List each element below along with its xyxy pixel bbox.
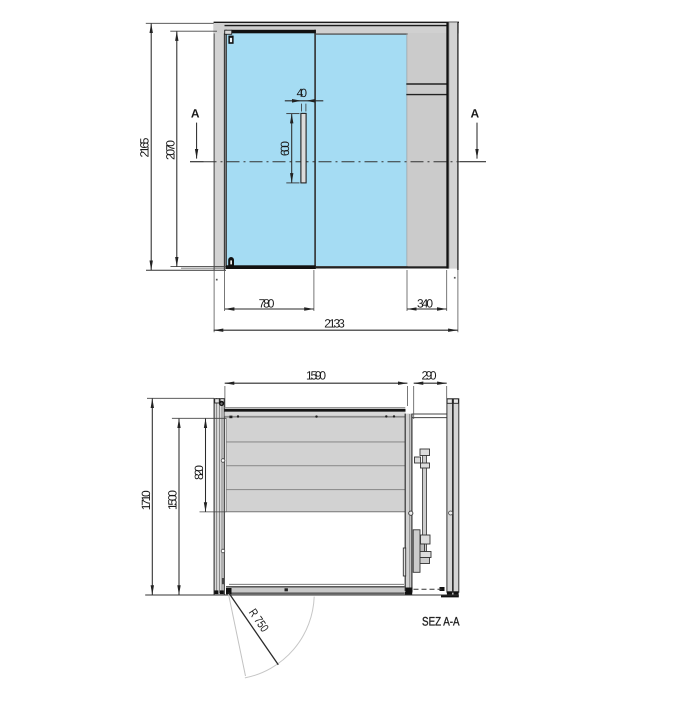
svg-text:A: A bbox=[191, 106, 200, 120]
svg-text:1710: 1710 bbox=[139, 490, 153, 510]
svg-text:2070: 2070 bbox=[163, 140, 177, 160]
svg-text:290: 290 bbox=[422, 369, 437, 383]
svg-text:1590: 1590 bbox=[306, 369, 326, 383]
svg-text:2165: 2165 bbox=[138, 137, 152, 157]
svg-text:40: 40 bbox=[297, 86, 308, 100]
svg-text:2133: 2133 bbox=[324, 317, 345, 331]
svg-text:820: 820 bbox=[192, 465, 206, 480]
svg-text:340: 340 bbox=[417, 296, 433, 310]
svg-text:R 750: R 750 bbox=[246, 606, 272, 635]
svg-text:A: A bbox=[470, 106, 479, 120]
svg-text:600: 600 bbox=[278, 141, 292, 156]
svg-text:780: 780 bbox=[259, 296, 275, 310]
svg-text:SEZ A-A: SEZ A-A bbox=[422, 614, 460, 628]
svg-text:1500: 1500 bbox=[165, 490, 179, 510]
